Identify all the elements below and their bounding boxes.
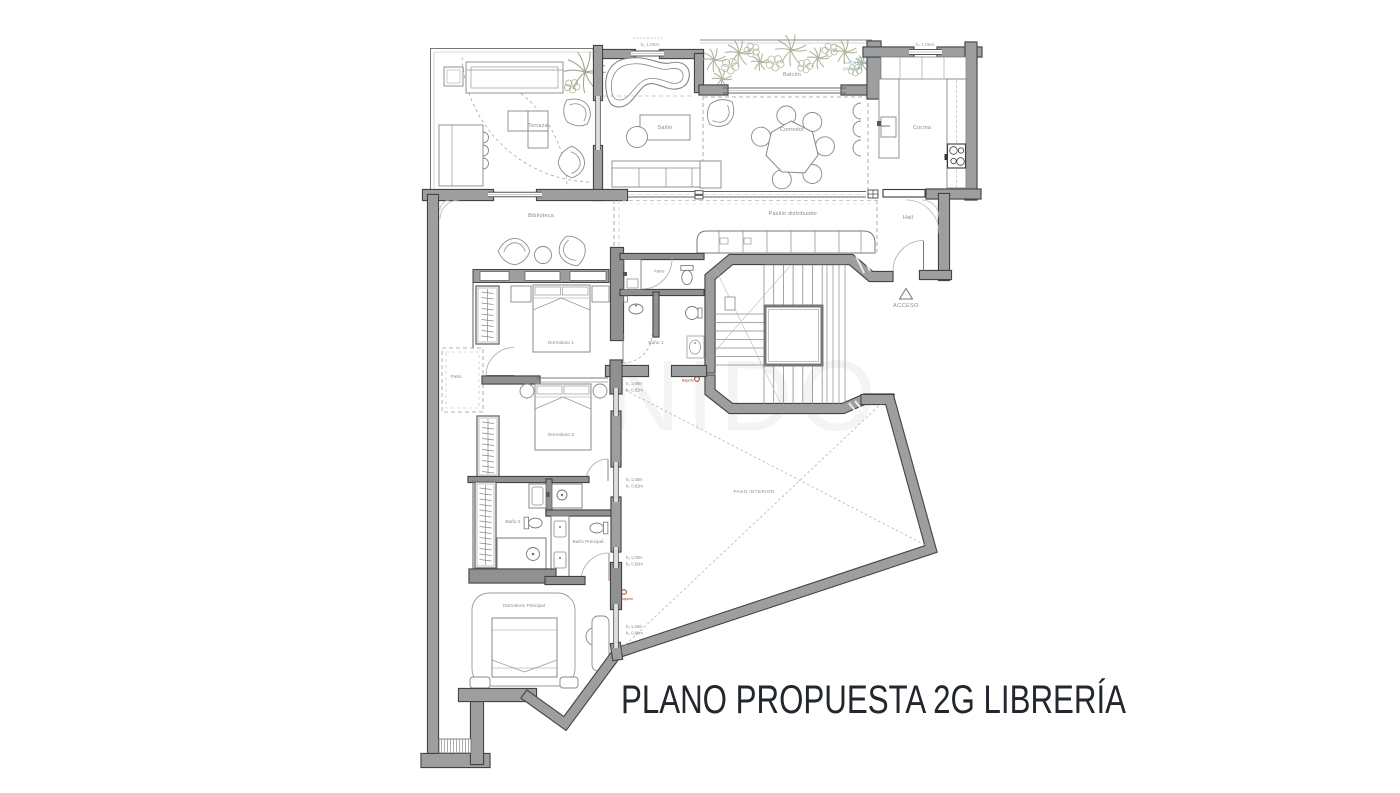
svg-text:hₖ 0,82m: hₖ 0,82m — [626, 388, 643, 393]
svg-text:Cocina: Cocina — [913, 125, 932, 131]
svg-text:hₓ 1,98m: hₓ 1,98m — [626, 381, 643, 386]
svg-text:Dormitorio 2: Dormitorio 2 — [548, 432, 574, 438]
svg-text:hₓ 1,05m: hₓ 1,05m — [916, 42, 935, 48]
svg-text:Baño 2: Baño 2 — [505, 519, 521, 525]
svg-text:hₖ 0,90m: hₖ 0,90m — [626, 631, 643, 636]
svg-text:Pasillo distribuidor: Pasillo distribuidor — [769, 211, 818, 217]
svg-text:Biblioteca: Biblioteca — [528, 213, 555, 219]
svg-text:Salón: Salón — [657, 125, 672, 131]
svg-text:Baño 1: Baño 1 — [648, 340, 664, 346]
svg-text:hₓ 1,45m: hₓ 1,45m — [626, 624, 643, 629]
svg-text:hₓ 1,55m: hₓ 1,55m — [626, 477, 643, 482]
svg-text:hₖ 0,82m: hₖ 0,82m — [626, 484, 643, 489]
svg-text:Aseo: Aseo — [654, 269, 665, 275]
svg-text:paredes: paredes — [843, 66, 860, 71]
svg-text:Baño Principal: Baño Principal — [573, 539, 604, 545]
svg-text:ACCESO: ACCESO — [893, 303, 919, 309]
svg-text:Terraza: Terraza — [528, 123, 548, 129]
svg-text:PASO INTERIOR: PASO INTERIOR — [733, 489, 774, 495]
svg-text:PLANO PROPUESTA 2G LIBRERÍA: PLANO PROPUESTA 2G LIBRERÍA — [621, 677, 1126, 722]
svg-text:Hall: Hall — [903, 215, 913, 221]
svg-text:Bajante: Bajante — [682, 379, 694, 383]
svg-text:Bajante: Bajante — [621, 597, 633, 601]
svg-text:Comedor: Comedor — [780, 127, 804, 133]
svg-text:hₖ 0,60m: hₖ 0,60m — [626, 562, 643, 567]
svg-text:Balcón: Balcón — [783, 72, 801, 78]
svg-text:hₓ 1,05m: hₓ 1,05m — [641, 42, 660, 48]
svg-text:Dormitorio 1: Dormitorio 1 — [548, 340, 574, 346]
svg-text:hₓ 1,00m: hₓ 1,00m — [626, 555, 643, 560]
svg-text:Dormitorio Principal: Dormitorio Principal — [503, 603, 545, 609]
svg-text:Patio: Patio — [451, 374, 462, 380]
